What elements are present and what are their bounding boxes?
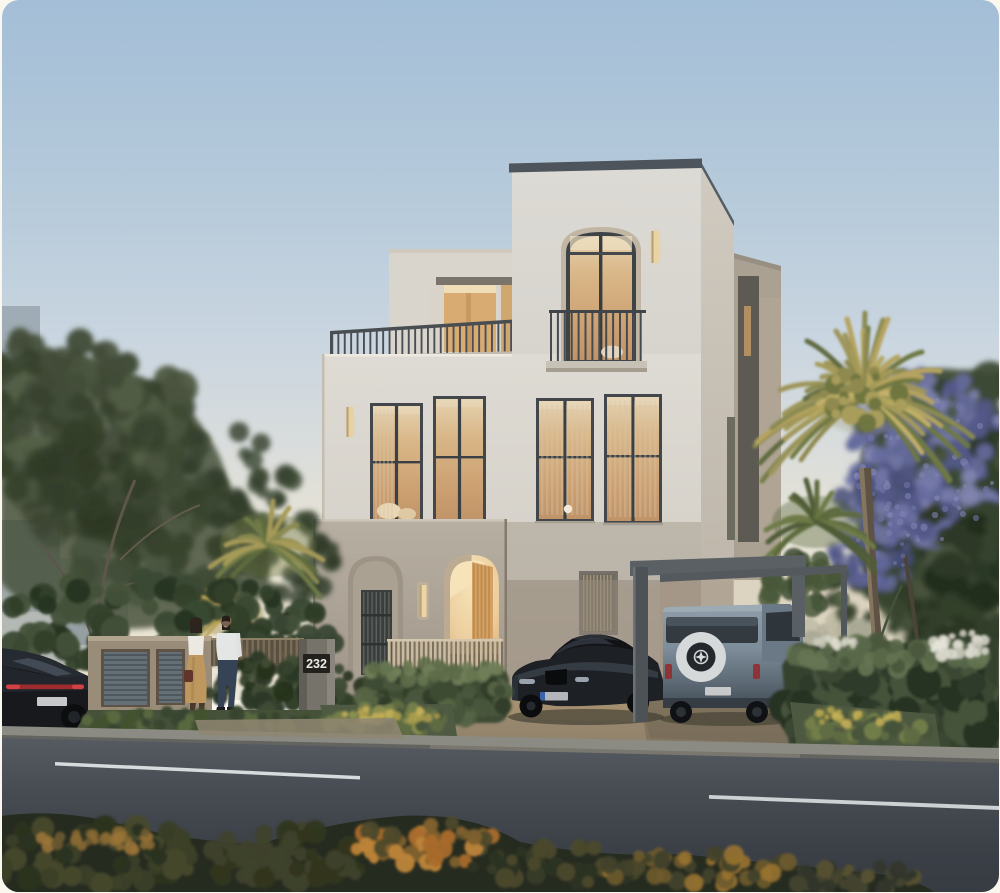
svg-text:232: 232 bbox=[306, 657, 327, 671]
